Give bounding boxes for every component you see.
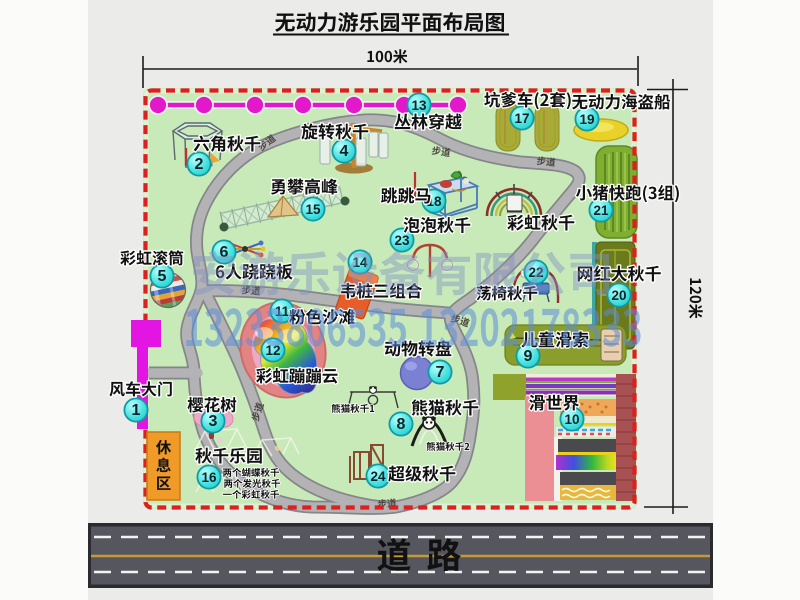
svg-text:16: 16 [201, 470, 217, 485]
svg-text:21: 21 [593, 203, 609, 218]
svg-text:23: 23 [394, 233, 410, 248]
svg-text:15: 15 [305, 202, 321, 217]
svg-text:1: 1 [132, 402, 141, 419]
svg-text:20: 20 [611, 288, 626, 303]
svg-text:10: 10 [564, 412, 579, 427]
svg-text:19: 19 [579, 112, 594, 127]
svg-text:5: 5 [158, 268, 167, 285]
svg-text:7: 7 [436, 364, 445, 381]
svg-text:2: 2 [195, 156, 204, 173]
svg-text:13: 13 [411, 98, 427, 113]
svg-text:17: 17 [514, 111, 529, 126]
svg-text:9: 9 [524, 348, 533, 365]
svg-text:4: 4 [340, 143, 349, 160]
svg-text:8: 8 [397, 416, 406, 433]
svg-text:3: 3 [209, 413, 218, 430]
svg-text:24: 24 [370, 469, 386, 484]
